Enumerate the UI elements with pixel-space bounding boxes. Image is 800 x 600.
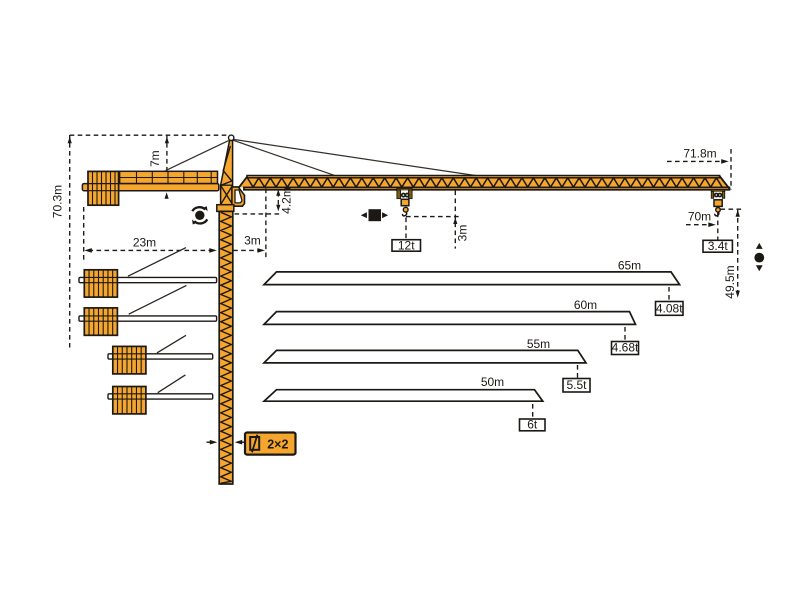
svg-text:3.4t: 3.4t — [708, 239, 729, 253]
svg-text:23m: 23m — [133, 235, 156, 249]
svg-text:4.08t: 4.08t — [656, 301, 683, 315]
svg-text:60m: 60m — [574, 298, 597, 312]
svg-text:71.8m: 71.8m — [683, 146, 716, 160]
svg-text:3m: 3m — [244, 233, 261, 247]
svg-text:3m: 3m — [456, 225, 470, 242]
svg-text:70m: 70m — [688, 209, 711, 223]
svg-text:55m: 55m — [527, 337, 550, 351]
svg-text:65m: 65m — [618, 258, 641, 272]
svg-text:5.5t: 5.5t — [566, 378, 587, 392]
svg-text:12t: 12t — [398, 239, 415, 253]
svg-text:2×2: 2×2 — [267, 438, 288, 452]
svg-text:50m: 50m — [481, 375, 504, 389]
svg-text:4.2m: 4.2m — [280, 187, 294, 214]
svg-text:70.3m: 70.3m — [51, 185, 65, 218]
svg-text:4.68t: 4.68t — [612, 341, 639, 355]
svg-text:49.5m: 49.5m — [723, 265, 737, 298]
svg-text:7m: 7m — [148, 150, 162, 167]
svg-text:6t: 6t — [527, 418, 538, 432]
